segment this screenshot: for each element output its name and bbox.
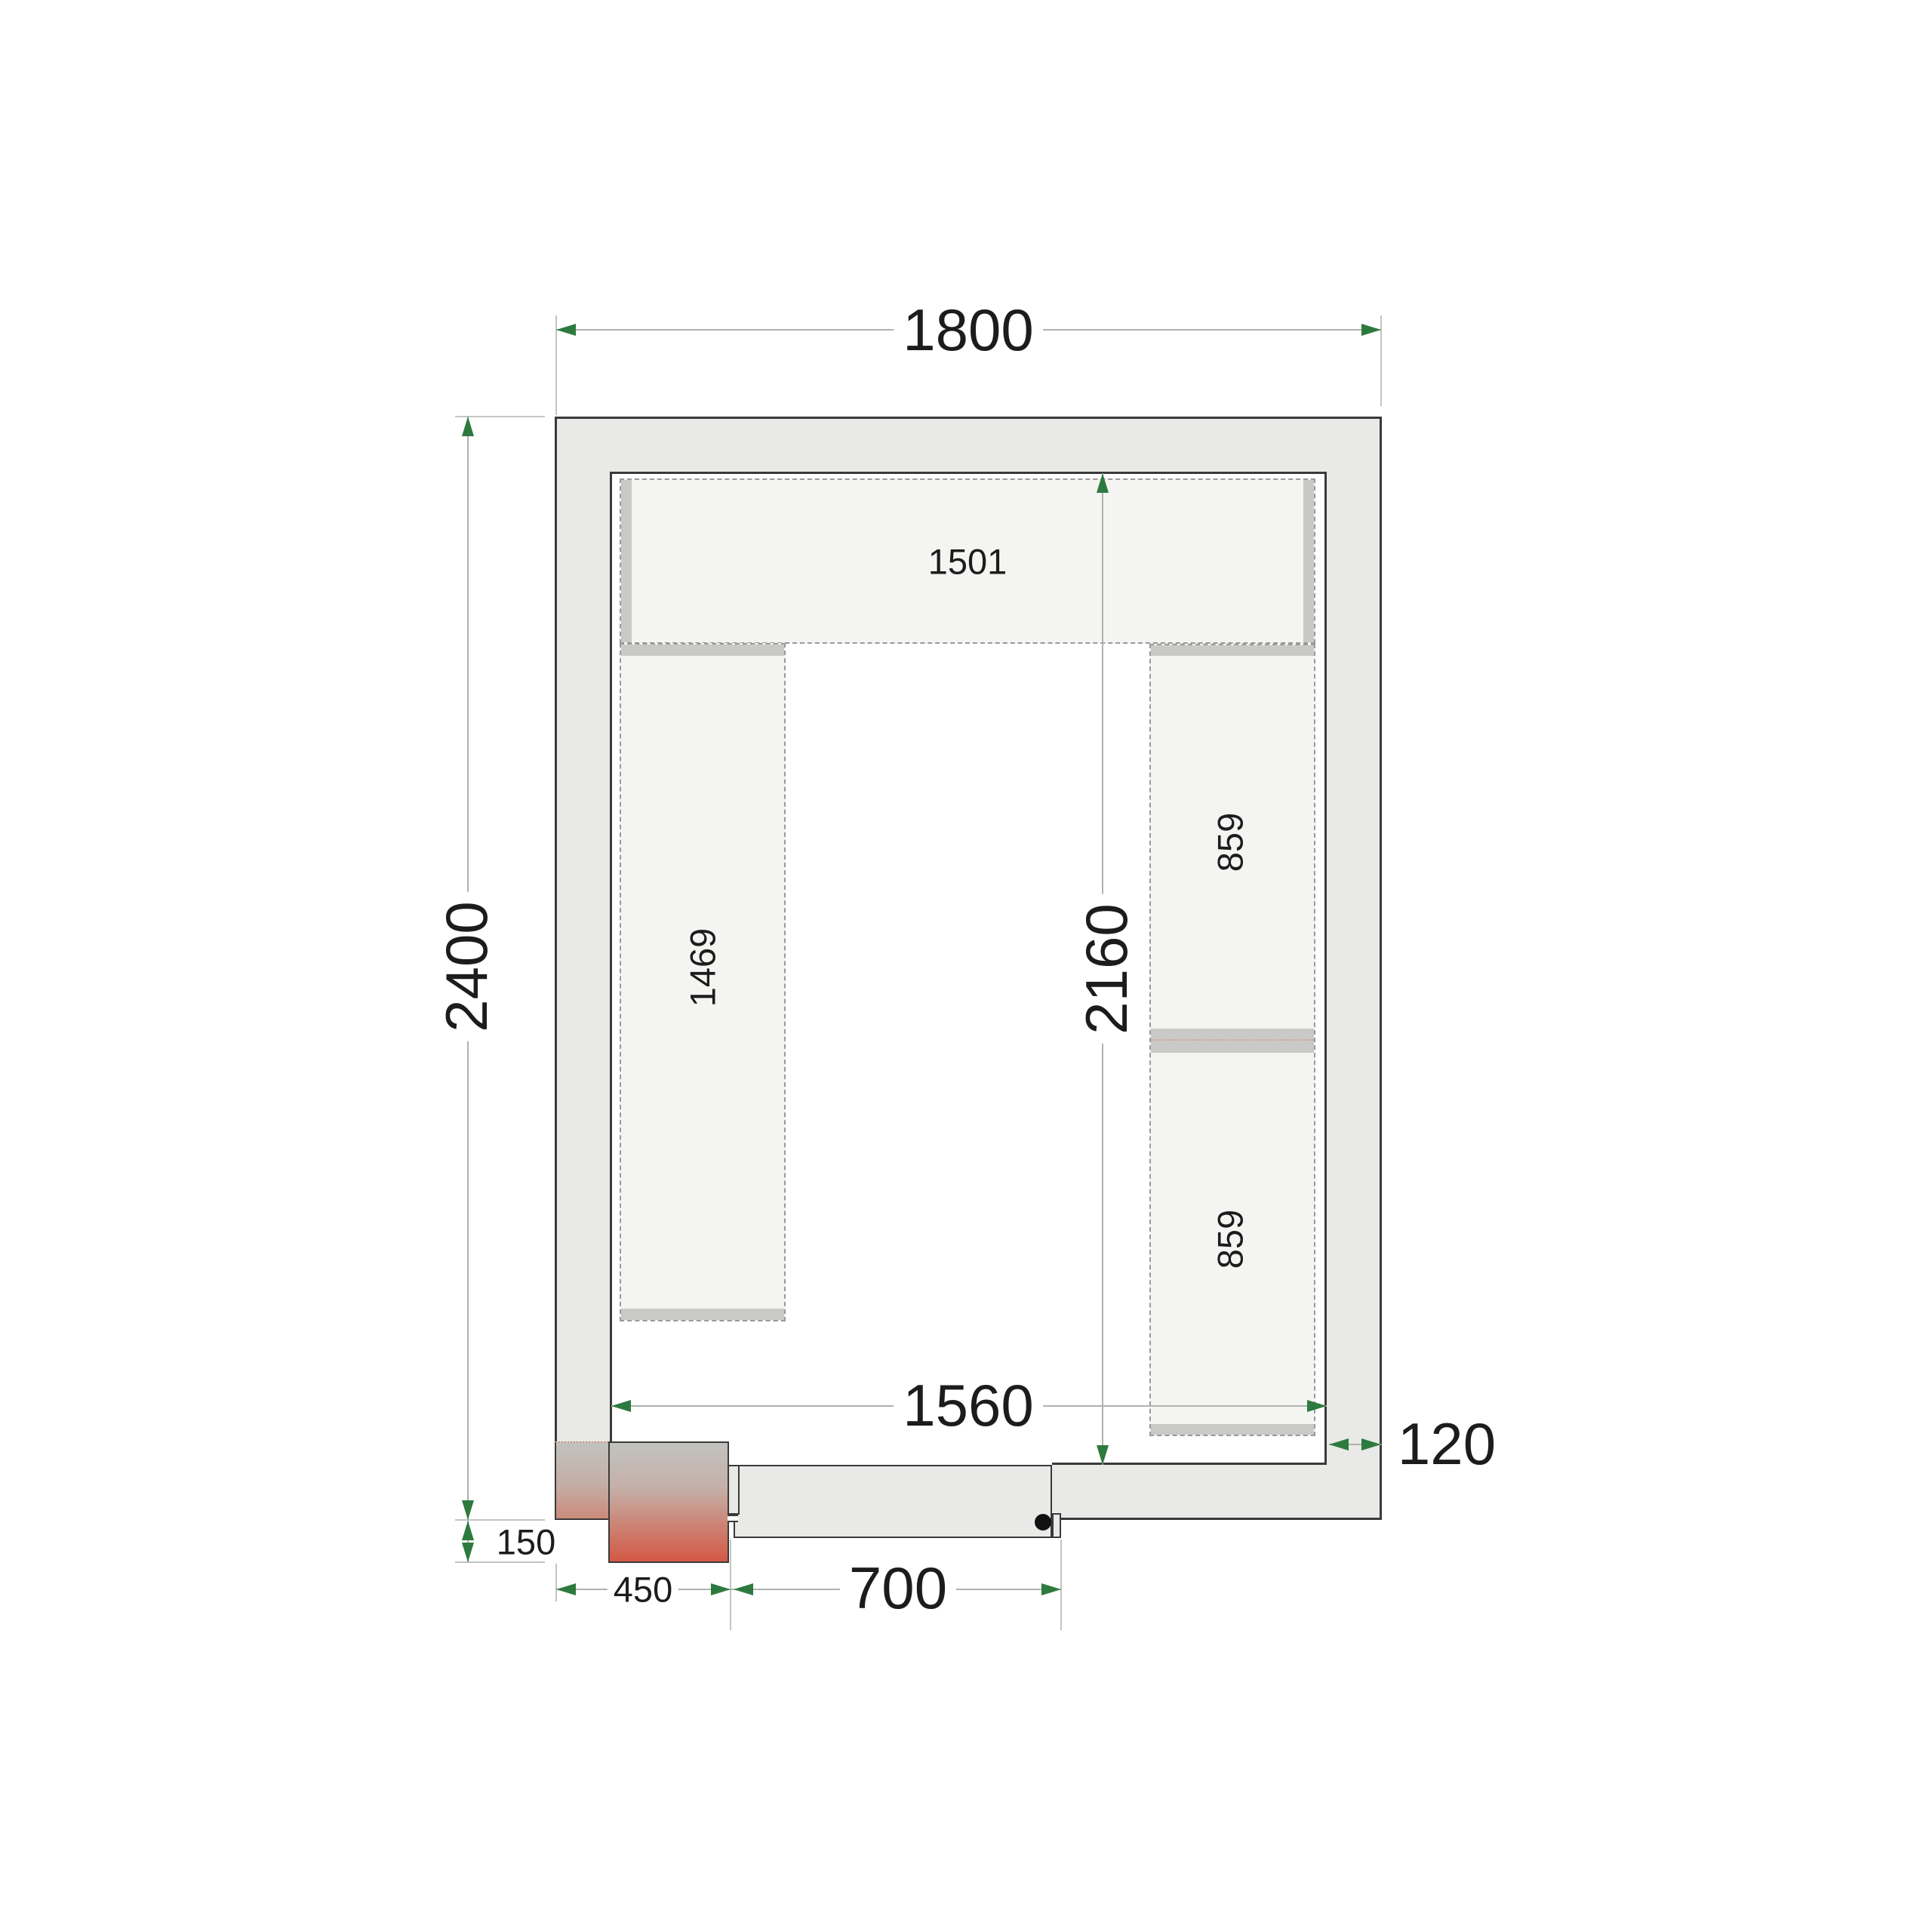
cooling-unit — [608, 1441, 729, 1563]
arrow-up-icon — [1097, 473, 1109, 493]
top-shelf-label: 1501 — [928, 544, 1008, 580]
arrow-right-icon — [1307, 1400, 1327, 1412]
door-handle-dot — [1035, 1514, 1051, 1531]
dim-label-outer-width: 1800 — [894, 300, 1043, 359]
arrow-left-icon — [1329, 1438, 1349, 1451]
top-shelf-right-edge-band — [1303, 480, 1314, 642]
arrow-left-icon — [556, 324, 576, 336]
door-left-notch — [728, 1515, 738, 1522]
divider-dotted-line — [1151, 1039, 1314, 1041]
door-right-jamb — [1052, 1513, 1061, 1538]
arrow-down-icon — [1097, 1445, 1109, 1465]
arrow-right-icon — [1041, 1583, 1061, 1595]
arrow-down-icon — [462, 1500, 474, 1520]
dim-label-door-width: 700 — [840, 1558, 956, 1617]
arrow-left-icon — [556, 1583, 576, 1595]
right-shelf-upper-label: 859 — [1213, 813, 1248, 872]
door-leaf — [734, 1465, 1052, 1538]
right-shelf-bottom-band — [1151, 1424, 1314, 1435]
arrow-left-icon — [734, 1583, 753, 1595]
left-shelf-top-band — [621, 645, 784, 656]
dim-label-unit-width: 450 — [608, 1572, 678, 1607]
dim-label-outer-height: 2400 — [437, 892, 496, 1041]
arrow-left-icon — [611, 1400, 631, 1412]
cooling-unit-wall-section — [555, 1441, 610, 1520]
dim-label-inner-width: 1560 — [894, 1376, 1043, 1435]
left-shelf-bottom-band — [621, 1309, 784, 1320]
arrow-right-icon — [1361, 1438, 1381, 1451]
arrow-up-icon — [462, 1521, 474, 1540]
arrow-down-icon — [462, 1543, 474, 1562]
dim-label-inner-height: 2160 — [1077, 894, 1136, 1044]
door-left-jamb — [728, 1465, 740, 1515]
floor-plan-canvas: 1501 1469 859 859 1800 2400 2160 1560 12… — [0, 0, 1932, 1932]
ext-line-unit-left — [555, 1564, 557, 1601]
top-shelf-left-edge-band — [621, 480, 632, 642]
arrow-right-icon — [711, 1583, 731, 1595]
right-shelf-divider-band — [1151, 1029, 1314, 1053]
arrow-right-icon — [1361, 324, 1381, 336]
arrow-up-icon — [462, 417, 474, 436]
right-shelf-lower-label: 859 — [1213, 1210, 1248, 1269]
dim-label-unit-protrusion: 150 — [491, 1524, 561, 1560]
right-shelf-top-band — [1151, 645, 1314, 656]
left-shelf-label: 1469 — [685, 928, 721, 1008]
dim-label-wall-thickness: 120 — [1389, 1414, 1505, 1473]
